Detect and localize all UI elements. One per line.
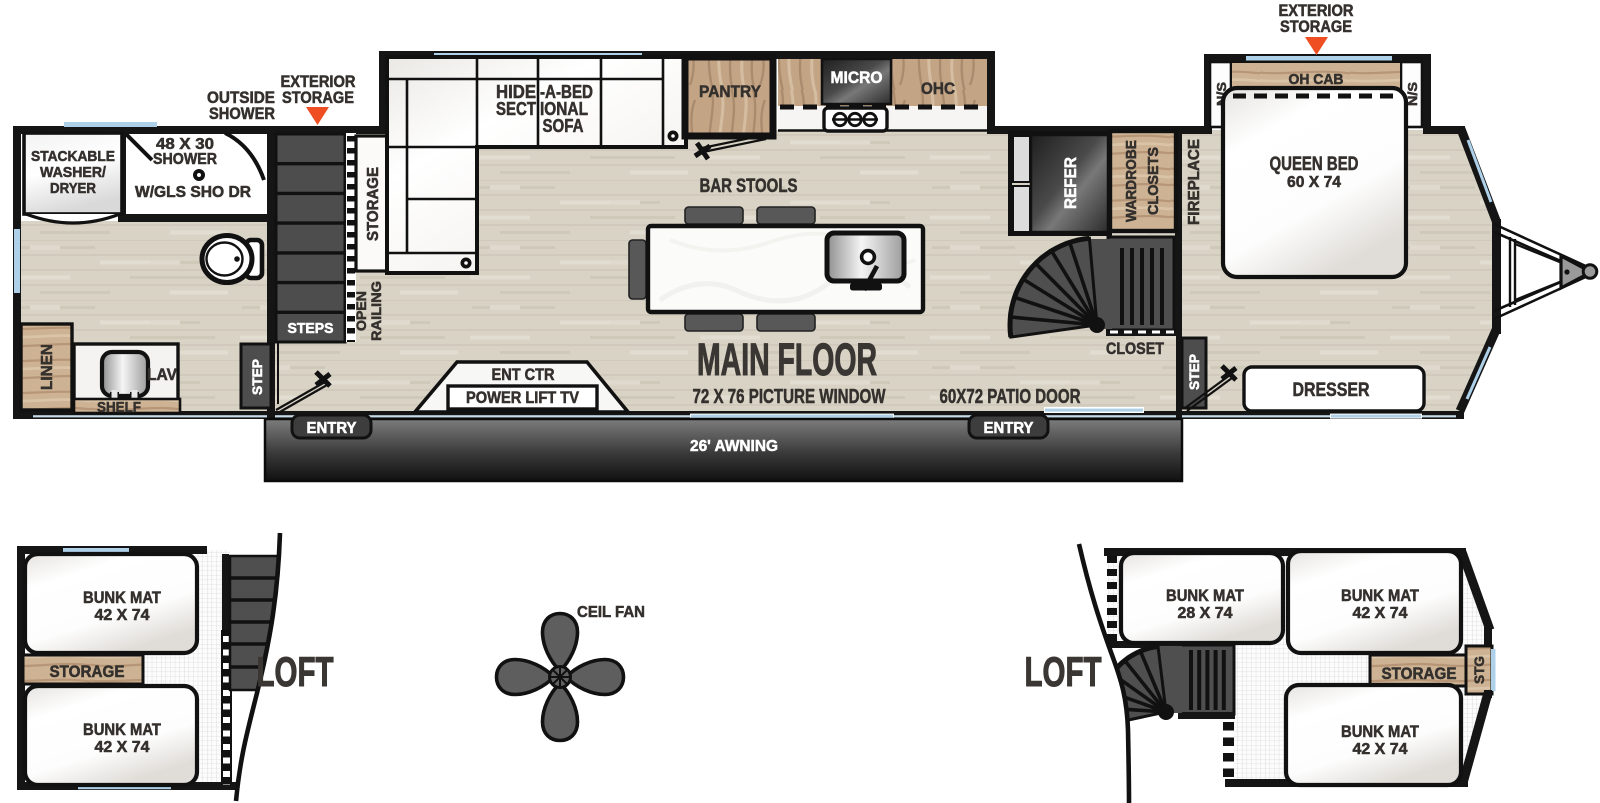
svg-text:LAV: LAV — [147, 366, 177, 384]
svg-text:60 X 74: 60 X 74 — [1287, 174, 1341, 191]
svg-text:60X72 PATIO DOOR: 60X72 PATIO DOOR — [940, 385, 1081, 408]
svg-text:42 X 74: 42 X 74 — [1353, 741, 1408, 758]
svg-text:STORAGE: STORAGE — [50, 663, 125, 681]
svg-text:WARDROBE: WARDROBE — [1123, 140, 1140, 222]
svg-text:STG: STG — [1472, 656, 1487, 684]
svg-text:STEP: STEP — [249, 359, 265, 395]
svg-text:BUNK MAT: BUNK MAT — [1166, 586, 1245, 605]
svg-text:REFER: REFER — [1061, 157, 1080, 209]
svg-text:FIREPLACE: FIREPLACE — [1186, 139, 1203, 225]
svg-text:BUNK MAT: BUNK MAT — [83, 588, 162, 607]
svg-text:BUNK MAT: BUNK MAT — [83, 720, 162, 739]
svg-text:42 X 74: 42 X 74 — [95, 739, 150, 756]
svg-text:SHOWER: SHOWER — [209, 105, 275, 123]
svg-text:STACKABLE: STACKABLE — [31, 148, 115, 165]
svg-text:ENTRY: ENTRY — [984, 420, 1035, 437]
svg-text:SECT: SECT — [496, 99, 536, 119]
svg-text:BUNK MAT: BUNK MAT — [1341, 586, 1420, 605]
svg-text:RAILING: RAILING — [368, 281, 384, 341]
svg-text:ENT CTR: ENT CTR — [492, 365, 555, 384]
svg-text:QUEEN BED: QUEEN BED — [1270, 154, 1359, 175]
svg-text:STORAGE: STORAGE — [1382, 665, 1457, 683]
svg-text:ENTRY: ENTRY — [307, 420, 358, 437]
svg-text:OH CAB: OH CAB — [1289, 72, 1344, 88]
svg-text:CLOSET: CLOSET — [1106, 339, 1165, 358]
svg-text:STEPS: STEPS — [288, 320, 334, 337]
svg-text:POWER LIFT TV: POWER LIFT TV — [466, 389, 579, 407]
svg-text:42 X 74: 42 X 74 — [1353, 605, 1408, 622]
svg-text:W/GLS SHO DR: W/GLS SHO DR — [135, 184, 251, 201]
svg-text:STORAGE: STORAGE — [365, 167, 382, 241]
svg-text:MICRO: MICRO — [831, 69, 883, 87]
svg-text:28 X 74: 28 X 74 — [1178, 605, 1233, 622]
svg-text:CLOSETS: CLOSETS — [1145, 147, 1162, 215]
svg-text:26' AWNING: 26' AWNING — [690, 438, 778, 455]
svg-text:SHELF: SHELF — [97, 400, 141, 416]
svg-text:STORAGE: STORAGE — [1280, 18, 1352, 36]
svg-text:LOFT: LOFT — [1025, 648, 1102, 695]
svg-text:72 X 76 PICTURE WINDOW: 72 X 76 PICTURE WINDOW — [693, 385, 886, 408]
svg-text:SHOWER: SHOWER — [153, 151, 217, 168]
svg-text:WASHER/: WASHER/ — [40, 164, 107, 181]
svg-text:SOFA: SOFA — [543, 116, 584, 136]
svg-text:PANTRY: PANTRY — [699, 82, 762, 101]
svg-text:CEIL FAN: CEIL FAN — [577, 604, 645, 621]
svg-text:OHC: OHC — [921, 80, 955, 98]
svg-text:BUNK MAT: BUNK MAT — [1341, 722, 1420, 741]
svg-text:STORAGE: STORAGE — [282, 89, 354, 107]
svg-text:OPEN: OPEN — [353, 291, 369, 331]
svg-text:DRYER: DRYER — [50, 180, 96, 197]
svg-text:STEP: STEP — [1186, 354, 1202, 390]
svg-text:LINEN: LINEN — [39, 344, 56, 390]
svg-text:42 X 74: 42 X 74 — [95, 607, 150, 624]
svg-text:DRESSER: DRESSER — [1293, 380, 1370, 401]
svg-text:BAR STOOLS: BAR STOOLS — [700, 175, 798, 197]
svg-text:MAIN FLOOR: MAIN FLOOR — [697, 334, 877, 385]
svg-text:LOFT: LOFT — [257, 648, 334, 695]
